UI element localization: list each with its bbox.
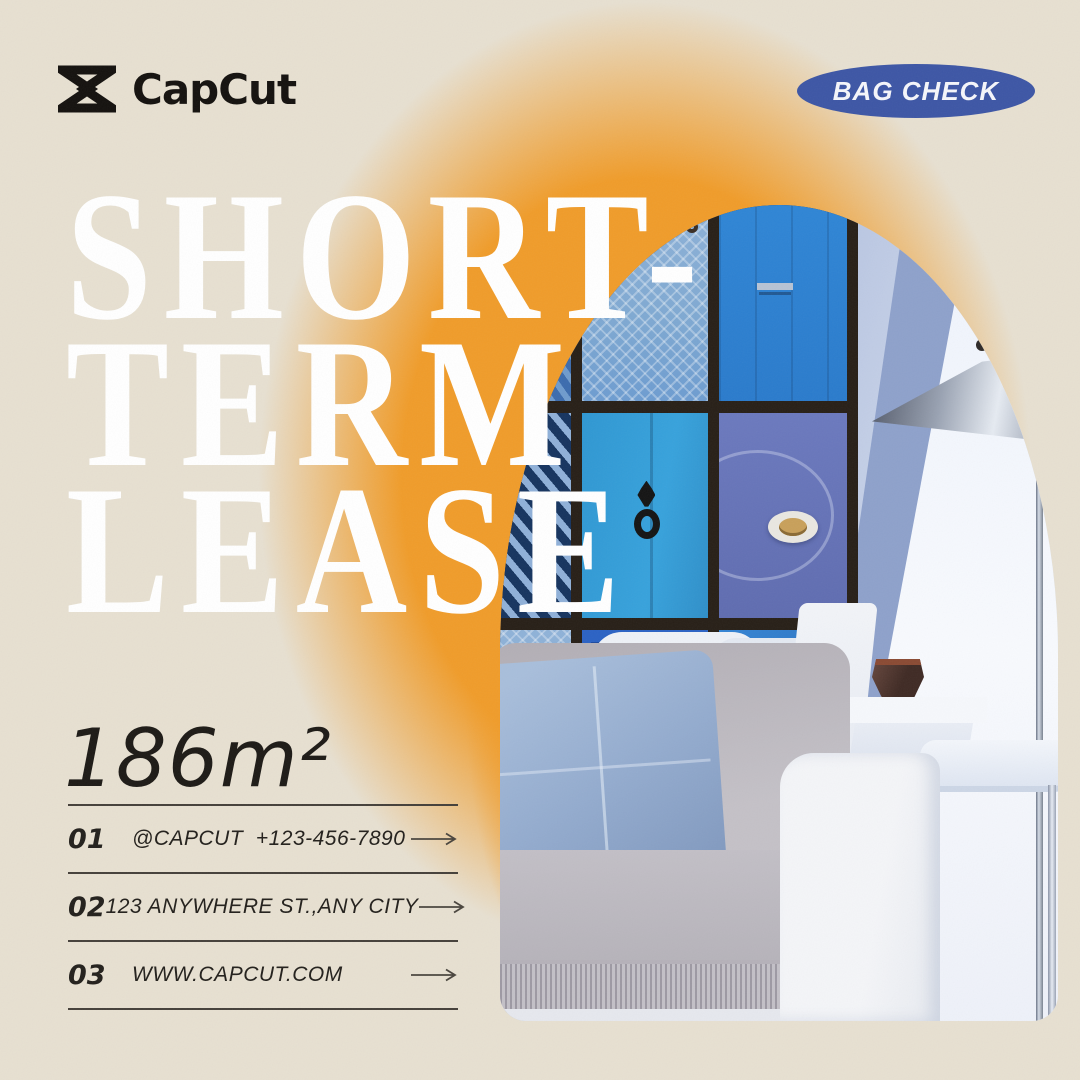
door-photo bbox=[719, 205, 847, 401]
capcut-logo-icon bbox=[58, 64, 116, 114]
door-photo bbox=[582, 205, 708, 401]
arrow-right-icon[interactable] bbox=[418, 900, 466, 914]
row-number: 03 bbox=[68, 960, 132, 991]
door-photo bbox=[500, 413, 571, 618]
arch-photo bbox=[500, 205, 1058, 1021]
sofa-arm bbox=[780, 753, 940, 1021]
side-table bbox=[845, 697, 987, 723]
row-text: 123 ANYWHERE ST.,ANY CITY bbox=[106, 895, 419, 919]
contact-row-1[interactable]: 01 @CAPCUT +123-456-7890 bbox=[68, 806, 458, 872]
area-stat: 186m² bbox=[64, 712, 332, 805]
arrow-right-icon[interactable] bbox=[410, 832, 458, 846]
floor-lamp-finial bbox=[976, 339, 988, 351]
floor-lamp-pole bbox=[1036, 441, 1043, 1021]
capcut-logo: CapCut bbox=[58, 64, 296, 114]
contact-row-3[interactable]: 03 WWW.CAPCUT.COM bbox=[68, 942, 458, 1008]
row-text: @CAPCUT +123-456-7890 bbox=[132, 827, 410, 851]
c-table-top bbox=[920, 740, 1058, 792]
brand-name: CapCut bbox=[132, 65, 296, 114]
row-number: 02 bbox=[68, 892, 106, 923]
poster-canvas: CapCut BAG CHECK bbox=[0, 0, 1080, 1080]
contact-list: 01 @CAPCUT +123-456-7890 02 123 ANYWHERE… bbox=[68, 804, 458, 1010]
c-table-leg bbox=[1048, 785, 1056, 1021]
row-text: WWW.CAPCUT.COM bbox=[132, 963, 410, 987]
arrow-right-icon[interactable] bbox=[410, 968, 458, 982]
contact-row-2[interactable]: 02 123 ANYWHERE ST.,ANY CITY bbox=[68, 874, 458, 940]
bag-check-badge[interactable]: BAG CHECK bbox=[797, 64, 1035, 118]
door-photo bbox=[582, 413, 708, 618]
door-photo bbox=[500, 205, 571, 401]
row-number: 01 bbox=[68, 824, 132, 855]
door-photo bbox=[719, 413, 847, 618]
bag-check-badge-label: BAG CHECK bbox=[833, 76, 999, 107]
divider bbox=[68, 1008, 458, 1010]
